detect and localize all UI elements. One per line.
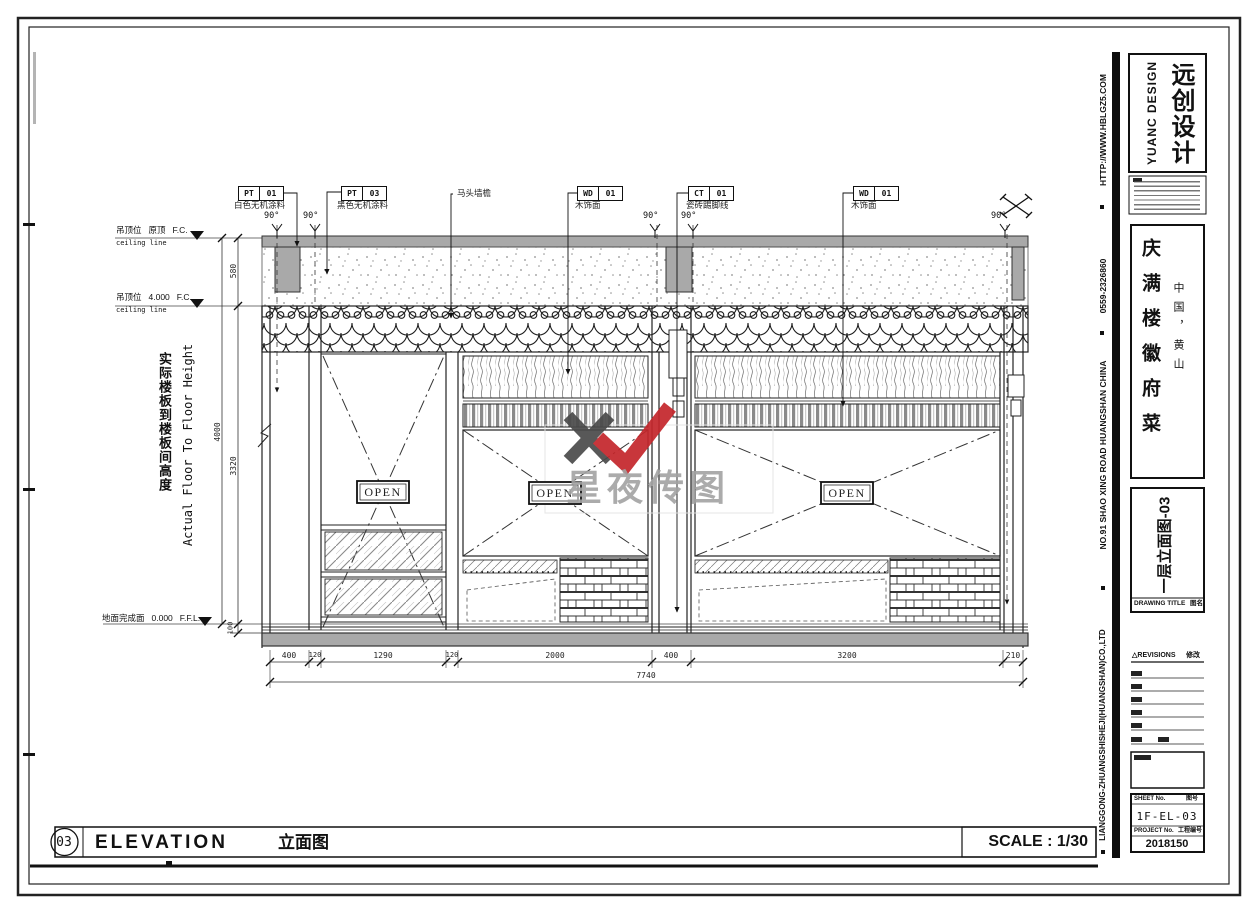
strip-website: HTTP://WWW.HBLGZ5.COM bbox=[1099, 74, 1108, 186]
level-value: 4.000 bbox=[149, 292, 170, 302]
callout-wd01b: WD 01 bbox=[853, 186, 899, 201]
callout-num: 01 bbox=[710, 187, 733, 200]
level-top-sub: ceiling line bbox=[116, 240, 167, 247]
drawing-title-label-cn: 图名 bbox=[1190, 601, 1203, 608]
footer-title-en: ELEVATION bbox=[95, 833, 228, 852]
callout-num: 01 bbox=[875, 187, 898, 200]
angle-label: 90° bbox=[991, 212, 1006, 221]
footer-title-cn: 立面图 bbox=[278, 834, 329, 851]
level-mid-sub: ceiling line bbox=[116, 307, 167, 314]
hdim: 3200 bbox=[837, 652, 856, 660]
callout-code: WD bbox=[578, 187, 599, 200]
callout-pt03: PT 03 bbox=[341, 186, 387, 201]
strip-phone: 0559-2326860 bbox=[1099, 259, 1108, 314]
callout-pt01-desc: 白色无机涂料 bbox=[234, 201, 285, 210]
callout-num: 01 bbox=[599, 187, 622, 200]
sheet-number: 1F-EL-03 bbox=[1137, 811, 1198, 822]
revisions-label: REVISIONS bbox=[1137, 652, 1175, 659]
height-note-cn: 实际楼板到楼板间高度 bbox=[158, 352, 171, 492]
level-top: 吊顶位原顶F.C. bbox=[116, 226, 188, 235]
callout-wd01a: WD 01 bbox=[577, 186, 623, 201]
open-sign: OPEN bbox=[821, 482, 873, 504]
callout-ct01: CT 01 bbox=[688, 186, 734, 201]
drawing-sheet: PT 01 白色无机涂料 PT 03 黑色无机涂料 马头墙檐 WD 01 木饰面… bbox=[0, 0, 1258, 913]
level-prefix: 吊顶位 bbox=[116, 292, 142, 302]
watermark-text: 星夜传图 bbox=[566, 470, 730, 506]
hdim-total: 7740 bbox=[636, 672, 655, 680]
sheet-no-label: SHEET No. bbox=[1134, 796, 1165, 802]
vdim-4000: 4000 bbox=[214, 422, 222, 441]
callout-ct01-desc: 瓷砖踢脚线 bbox=[686, 201, 729, 210]
callout-pt03-desc: 黑色无机涂料 bbox=[337, 201, 388, 210]
hdim: 1290 bbox=[373, 652, 392, 660]
label-matou-qiang-yan: 马头墙檐 bbox=[457, 189, 491, 198]
project-name-cn: 庆满楼徽府菜 bbox=[1140, 238, 1159, 448]
level-value: 0.000 bbox=[152, 613, 173, 623]
level-floor: 地面完成面0.000F.F.L. bbox=[102, 614, 200, 623]
sheet-no-label-cn: 图号 bbox=[1186, 796, 1198, 802]
hdim: 120 bbox=[309, 652, 322, 659]
logo-en: YUANC DESIGN bbox=[1146, 61, 1158, 165]
level-suffix: F.F.L. bbox=[180, 613, 200, 623]
level-prefix: 吊顶位 bbox=[116, 225, 142, 235]
notes-block bbox=[1134, 181, 1200, 211]
height-note-en: Actual Floor To Floor Height bbox=[182, 344, 194, 546]
angle-label: 90° bbox=[681, 212, 696, 221]
project-no-label: PROJECT No. bbox=[1134, 828, 1174, 834]
scale-label: SCALE : 1/30 bbox=[988, 834, 1088, 850]
angle-label: 90° bbox=[643, 212, 658, 221]
callout-code: PT bbox=[239, 187, 260, 200]
callout-wd01b-desc: 木饰面 bbox=[851, 201, 877, 210]
callout-code: CT bbox=[689, 187, 710, 200]
angle-label: 90° bbox=[264, 212, 279, 221]
callout-pt01: PT 01 bbox=[238, 186, 284, 201]
project-number: 2018150 bbox=[1146, 839, 1189, 850]
drawing-title-label: DRAWING TITLE bbox=[1134, 601, 1185, 608]
revisions-header: △REVISIONS bbox=[1132, 652, 1176, 659]
level-prefix: 地面完成面 bbox=[102, 613, 145, 623]
project-no-label-cn: 工程编号 bbox=[1178, 828, 1202, 834]
callout-wd01a-desc: 木饰面 bbox=[575, 201, 601, 210]
drawing-number-cn: 一层立面图-03 bbox=[1158, 497, 1173, 594]
level-mid: 吊顶位4.000F.C. bbox=[116, 293, 192, 302]
callout-num: 01 bbox=[260, 187, 283, 200]
hdim: 120 bbox=[446, 652, 459, 659]
strip-address: NO.91 SHAO XING ROAD HUANGSHAN CHINA bbox=[1099, 361, 1108, 550]
revisions-label-cn: 修改 bbox=[1186, 652, 1200, 659]
hdim: 400 bbox=[664, 652, 678, 660]
callout-code: PT bbox=[342, 187, 363, 200]
vdim-100: 100 bbox=[228, 622, 235, 635]
level-suffix: F.C. bbox=[173, 225, 188, 235]
vdim-3320: 3320 bbox=[230, 456, 238, 475]
detail-number: 03 bbox=[56, 836, 72, 849]
hdim: 2000 bbox=[545, 652, 564, 660]
project-location: 中国，黄山 bbox=[1172, 282, 1183, 377]
angle-label: 90° bbox=[303, 212, 318, 221]
logo-cn: 远创设计 bbox=[1168, 62, 1192, 166]
hdim: 210 bbox=[1006, 652, 1020, 660]
level-value: 原顶 bbox=[149, 225, 166, 235]
level-suffix: F.C. bbox=[177, 292, 192, 302]
callout-code: WD bbox=[854, 187, 875, 200]
hdim: 400 bbox=[282, 652, 296, 660]
vdim-580: 580 bbox=[230, 264, 238, 278]
callout-num: 03 bbox=[363, 187, 386, 200]
strip-company: LIANGGONG-ZHUANGSHISHEJI(HUANGSHAN)CO.,L… bbox=[1099, 629, 1107, 840]
open-sign: OPEN bbox=[357, 481, 409, 503]
